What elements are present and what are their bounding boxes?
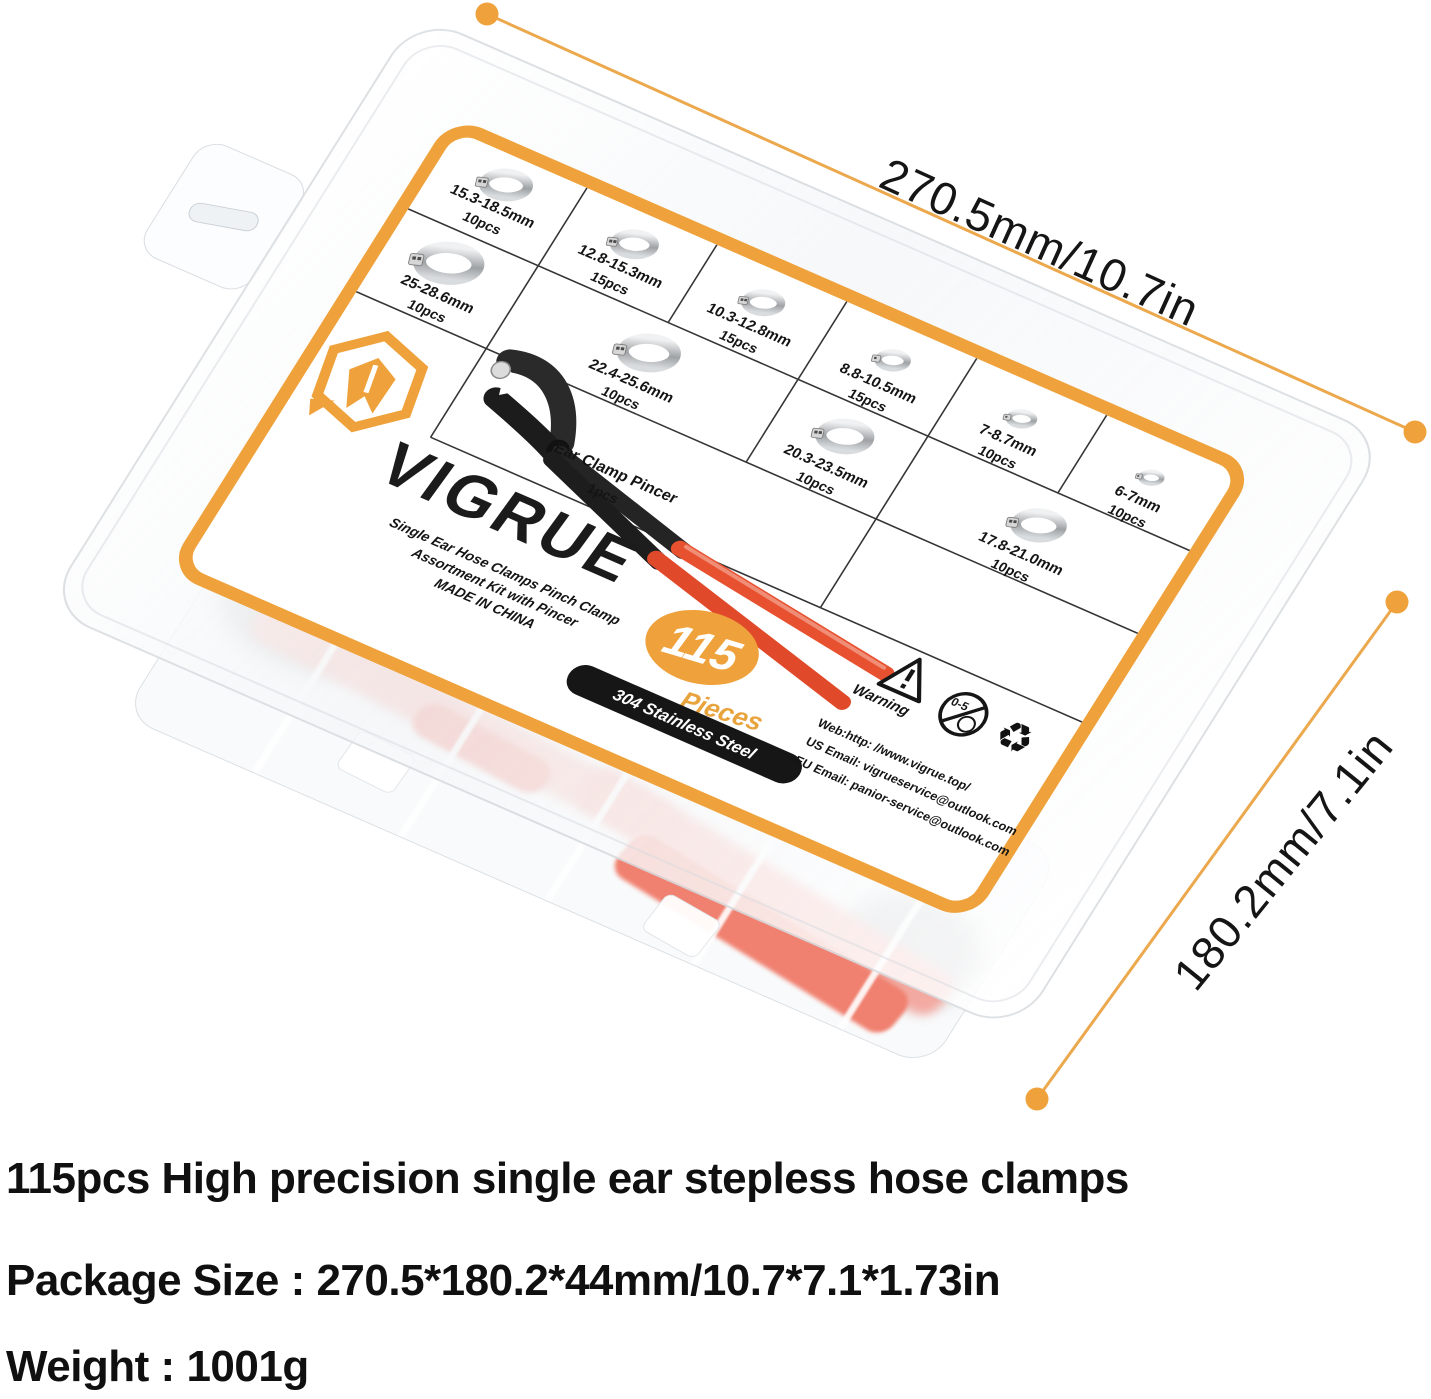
hanging-tab-slot <box>186 201 261 233</box>
clamp-icon <box>1002 410 1036 427</box>
clamp-icon <box>610 335 678 370</box>
clamp-icon <box>736 290 783 314</box>
depth-dimension-label: 180.2mm/7.1in <box>1162 720 1404 1001</box>
recycle-icon: ♻ <box>986 713 1043 764</box>
clamp-icon <box>809 420 872 452</box>
caption-line-2: Package Size : 270.5*180.2*44mm/10.7*7.1… <box>6 1256 1000 1306</box>
clamp-icon <box>1004 509 1065 540</box>
piece-count: 115 <box>655 613 749 682</box>
age-restriction-icon: 0-5 <box>926 682 1001 747</box>
clamp-icon <box>870 350 909 370</box>
caption-line-1: 115pcs High precision single ear steples… <box>6 1154 1129 1204</box>
caption-line-3: Weight : 1001g <box>6 1342 309 1392</box>
clamp-icon <box>1134 470 1163 484</box>
